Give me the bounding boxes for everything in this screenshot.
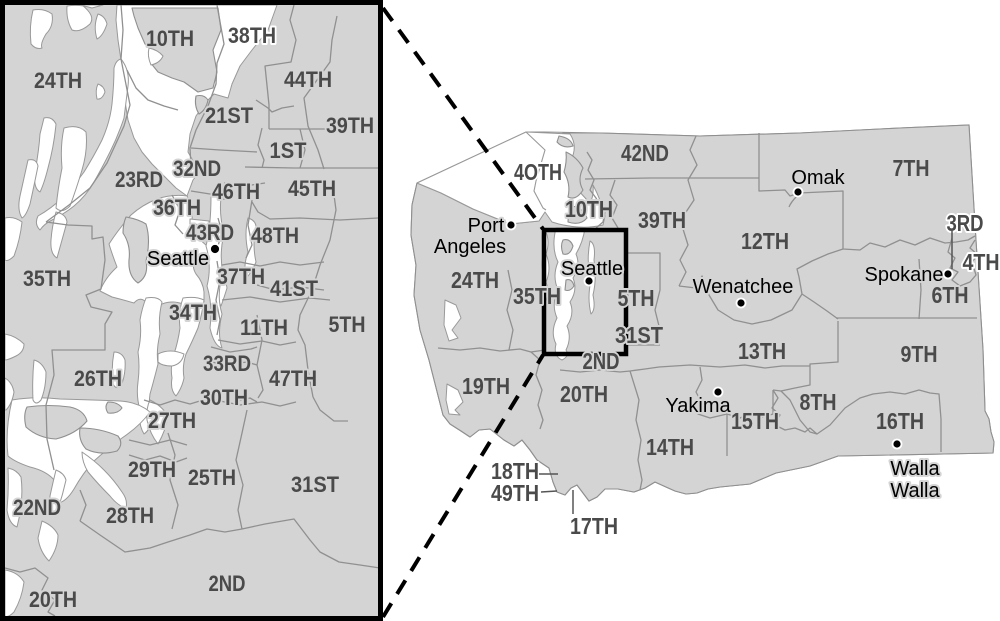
svg-text:2ND: 2ND [583, 348, 620, 374]
svg-text:11TH: 11TH [240, 315, 288, 340]
svg-text:35TH: 35TH [513, 283, 561, 309]
svg-text:31ST: 31ST [615, 322, 663, 348]
svg-text:24TH: 24TH [451, 267, 499, 293]
svg-text:19TH: 19TH [462, 373, 510, 399]
svg-text:32ND: 32ND [173, 156, 221, 181]
svg-text:39TH: 39TH [326, 113, 374, 138]
svg-text:4OTH: 4OTH [514, 159, 562, 185]
svg-text:27TH: 27TH [148, 408, 196, 433]
svg-text:9TH: 9TH [901, 341, 938, 367]
svg-text:30TH: 30TH [200, 385, 248, 410]
svg-text:20TH: 20TH [29, 587, 77, 612]
svg-text:42ND: 42ND [621, 140, 669, 166]
svg-text:38TH: 38TH [228, 23, 276, 48]
svg-text:17TH: 17TH [570, 513, 618, 539]
svg-text:37TH: 37TH [217, 264, 265, 289]
svg-text:34TH: 34TH [169, 300, 217, 325]
svg-text:33RD: 33RD [203, 351, 251, 376]
svg-text:Angeles: Angeles [434, 236, 506, 258]
svg-text:13TH: 13TH [738, 338, 786, 364]
svg-text:48TH: 48TH [251, 223, 299, 248]
svg-text:2ND: 2ND [209, 571, 246, 596]
svg-text:44TH: 44TH [284, 67, 332, 92]
svg-text:39TH: 39TH [638, 207, 686, 233]
svg-text:Port: Port [468, 215, 505, 237]
svg-text:26TH: 26TH [74, 366, 122, 391]
svg-text:5TH: 5TH [618, 285, 655, 311]
svg-text:31ST: 31ST [291, 472, 340, 497]
svg-text:10TH: 10TH [146, 26, 194, 51]
svg-text:28TH: 28TH [106, 503, 154, 528]
svg-text:Yakima: Yakima [665, 395, 731, 417]
svg-text:Omak: Omak [791, 167, 845, 189]
svg-text:22ND: 22ND [13, 495, 61, 520]
svg-text:5TH: 5TH [329, 312, 366, 337]
svg-text:10TH: 10TH [565, 196, 613, 222]
svg-text:43RD: 43RD [186, 220, 234, 245]
svg-text:47TH: 47TH [269, 366, 317, 391]
svg-text:24TH: 24TH [34, 68, 82, 93]
svg-text:Spokane: Spokane [865, 264, 944, 286]
svg-text:36TH: 36TH [153, 195, 201, 220]
svg-text:1ST: 1ST [270, 138, 308, 163]
svg-text:4TH: 4TH [963, 249, 1000, 275]
svg-text:8TH: 8TH [800, 389, 837, 415]
svg-text:Wenatchee: Wenatchee [693, 276, 794, 298]
svg-text:21ST: 21ST [205, 103, 254, 128]
svg-text:29TH: 29TH [128, 457, 176, 482]
svg-text:Seattle: Seattle [147, 248, 209, 270]
svg-text:15TH: 15TH [731, 408, 779, 434]
svg-text:23RD: 23RD [115, 167, 163, 192]
svg-text:41ST: 41ST [270, 276, 319, 301]
svg-text:49TH: 49TH [491, 480, 539, 506]
svg-text:16TH: 16TH [876, 408, 924, 434]
svg-text:20TH: 20TH [560, 381, 608, 407]
svg-text:35TH: 35TH [23, 266, 71, 291]
svg-text:46TH: 46TH [212, 179, 260, 204]
svg-text:Walla: Walla [890, 480, 940, 502]
svg-text:25TH: 25TH [188, 465, 236, 490]
svg-text:14TH: 14TH [646, 434, 694, 460]
svg-text:12TH: 12TH [741, 228, 789, 254]
svg-text:7TH: 7TH [893, 155, 930, 181]
svg-text:45TH: 45TH [288, 176, 336, 201]
svg-text:Walla: Walla [890, 458, 940, 480]
